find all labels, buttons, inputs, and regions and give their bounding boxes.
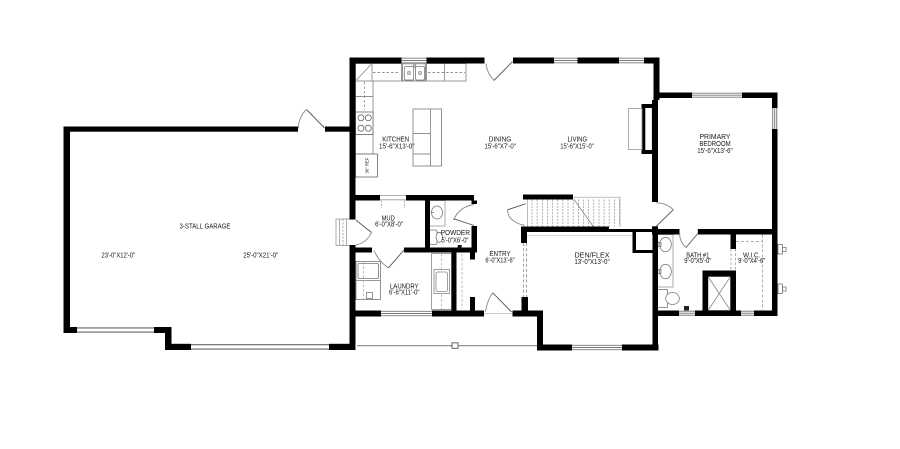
svg-text:15'-6"X13'-0": 15'-6"X13'-0" bbox=[379, 141, 415, 150]
svg-text:15'-6"X7'-0": 15'-6"X7'-0" bbox=[485, 141, 517, 150]
svg-text:25'-0"X21'-0": 25'-0"X21'-0" bbox=[243, 251, 278, 260]
svg-text:15'-6"X13'-6": 15'-6"X13'-6" bbox=[697, 146, 733, 155]
svg-text:3-STALL GARAGE: 3-STALL GARAGE bbox=[180, 222, 231, 231]
svg-text:13'-0"X13'-0": 13'-0"X13'-0" bbox=[574, 257, 610, 266]
svg-text:23'-0"X12'-0": 23'-0"X12'-0" bbox=[102, 251, 136, 260]
svg-text:15'-6"X15'-0": 15'-6"X15'-0" bbox=[560, 141, 594, 150]
svg-text:6'-6"X11'-0": 6'-6"X11'-0" bbox=[389, 288, 420, 297]
svg-text:36" REF: 36" REF bbox=[365, 157, 370, 173]
svg-text:5'-0"X6'-0": 5'-0"X6'-0" bbox=[442, 236, 469, 245]
svg-text:6'-0"X13'-6": 6'-0"X13'-6" bbox=[485, 256, 515, 265]
svg-text:6'-0"X8'-0": 6'-0"X8'-0" bbox=[375, 219, 403, 228]
svg-text:9'-0"X5'-0": 9'-0"X5'-0" bbox=[684, 256, 712, 265]
svg-text:9'-0"X4'-6": 9'-0"X4'-6" bbox=[738, 256, 766, 265]
